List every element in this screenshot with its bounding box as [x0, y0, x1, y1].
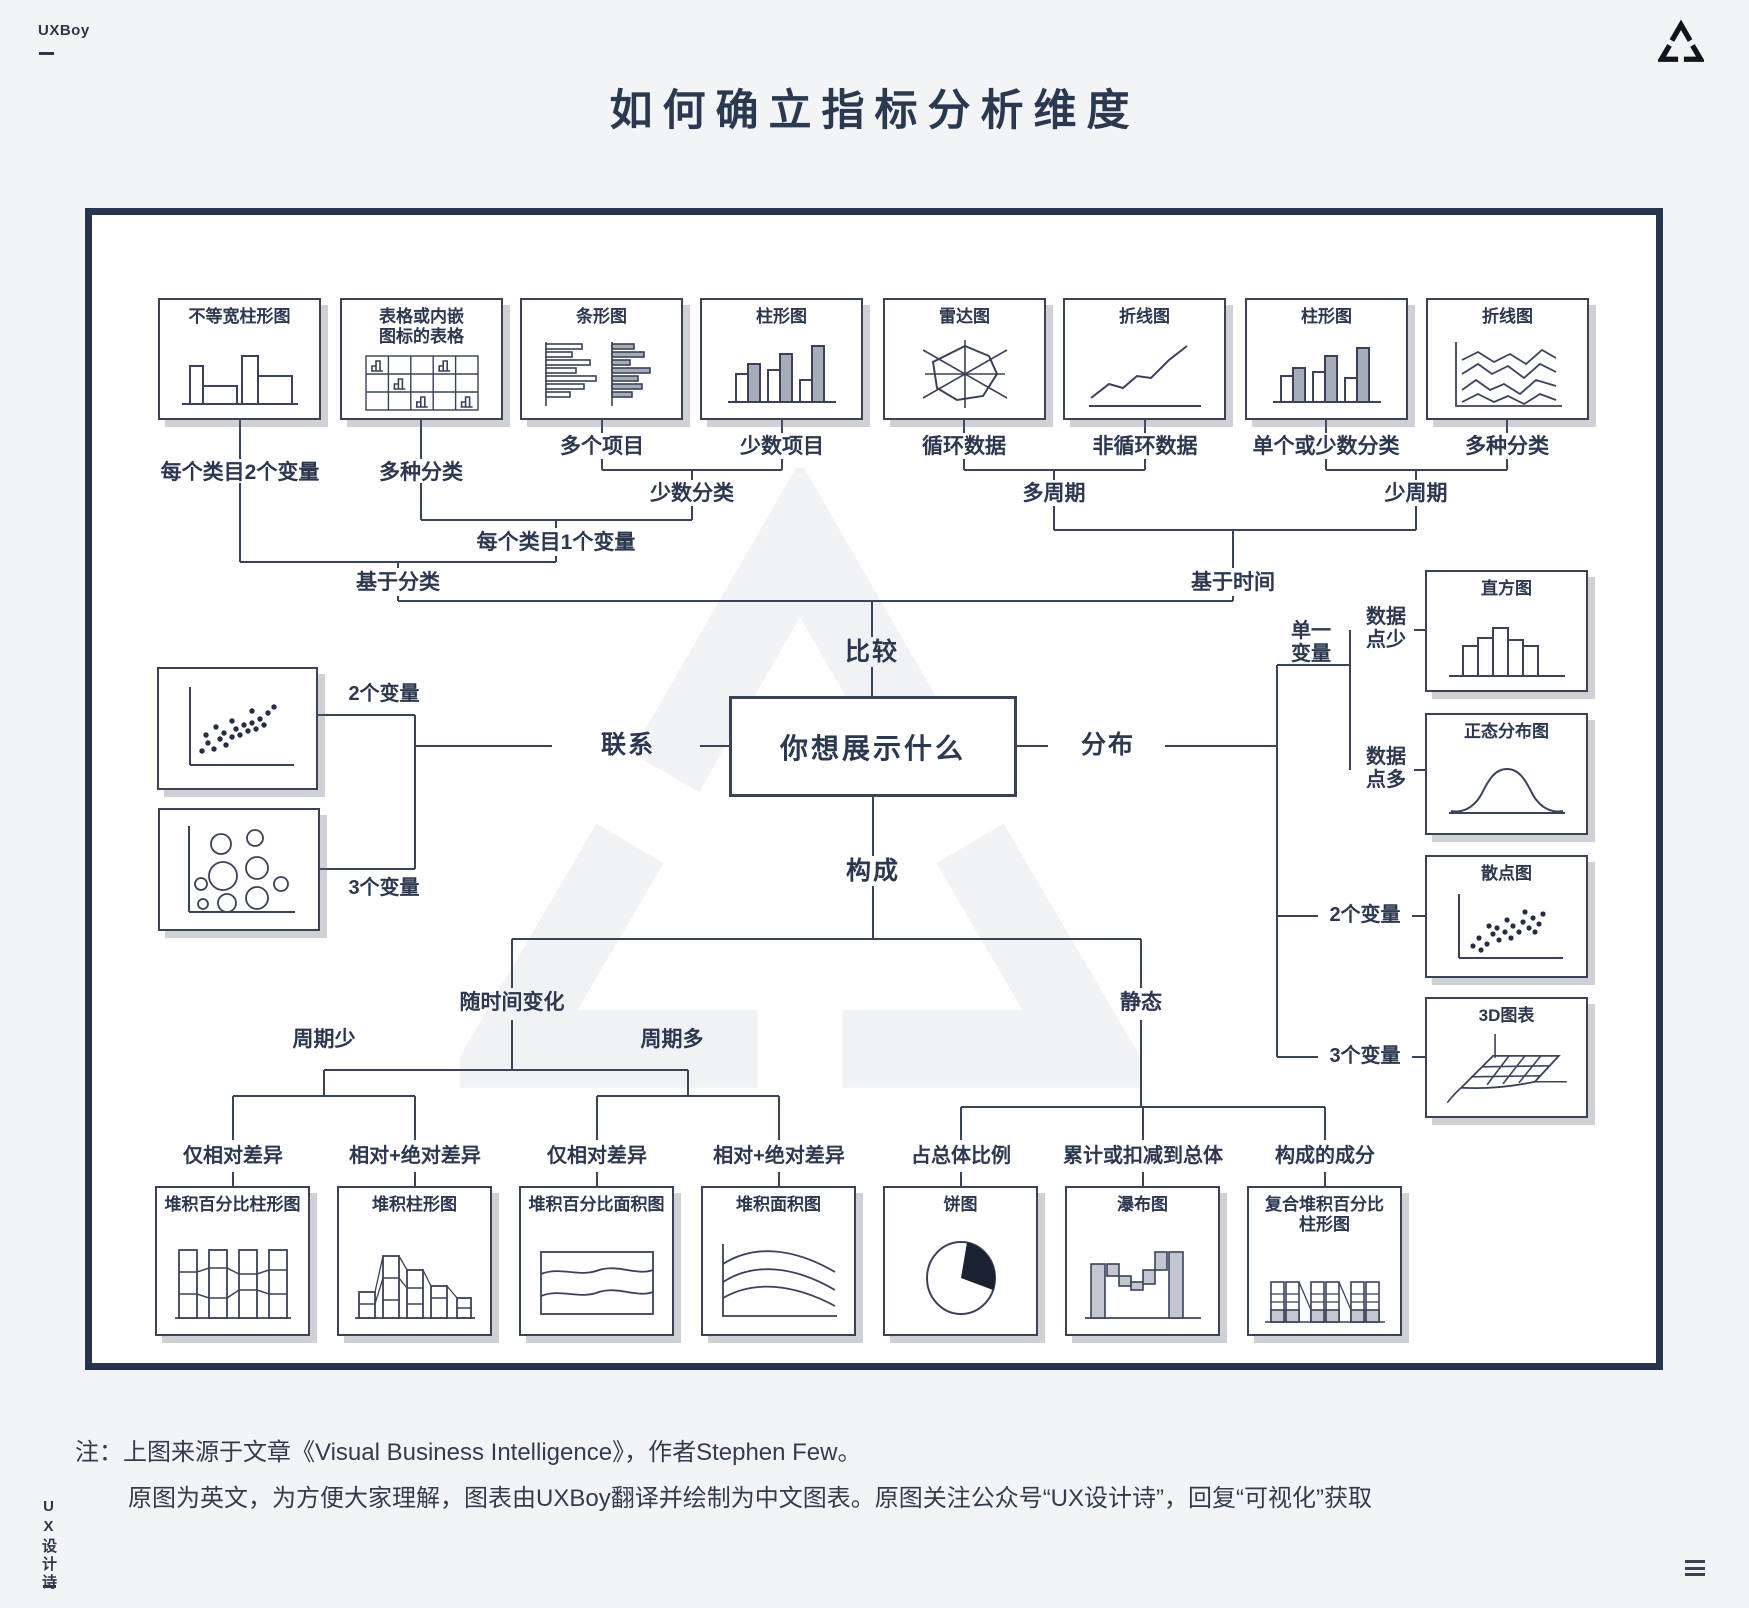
chart-box-title: 折线图: [1478, 307, 1537, 327]
bar-chart-thumb: [532, 334, 672, 414]
leaf-label: 相对+绝对差异: [713, 1145, 845, 1167]
chart-box-pie: 饼图: [883, 1186, 1038, 1336]
chart-box-title: 柱形图: [1297, 307, 1356, 327]
waterfall-chart-thumb: [1073, 1230, 1213, 1330]
chart-box-title: 堆积柱形图: [368, 1195, 461, 1215]
branch-label: 非循环数据: [1093, 435, 1198, 458]
chart-box-scatter-2var: [157, 667, 318, 790]
column-chart-thumb: [712, 334, 852, 414]
chart-box-title: 堆积百分比柱形图: [161, 1195, 305, 1215]
chart-box-stacked-100-area: 堆积百分比面积图: [519, 1186, 674, 1336]
chart-box-3d: 3D图表: [1425, 997, 1588, 1118]
connectors-compare-left: [240, 420, 782, 601]
distribution-single-variable-label: 单一变量: [1287, 620, 1335, 666]
chart-box-waterfall: 瀑布图: [1065, 1186, 1220, 1336]
note-line-1: 注：上图来源于文章《Visual Business Intelligence》，…: [75, 1432, 862, 1467]
leaf-label: 占总体比例: [911, 1145, 1011, 1167]
page: UXBoy 如何确立指标分析维度 不等宽柱形图: [0, 0, 1749, 1608]
column-chart-thumb: [1257, 334, 1397, 414]
stacked-area-thumb: [709, 1230, 849, 1330]
chart-box-scatter: 散点图: [1425, 855, 1588, 978]
vertical-brand-dash: [43, 1585, 56, 1588]
distribution-few-points-label: 数据点少: [1362, 606, 1410, 652]
merge-label-by-category: 基于分类: [356, 571, 440, 594]
multi-line-chart-thumb: [1438, 334, 1578, 414]
leaf-label: 累计或扣减到总体: [1063, 1145, 1223, 1167]
scatter-chart-thumb: [1437, 886, 1577, 972]
connectors-distribution: [1017, 630, 1425, 1057]
chart-box-stacked-column: 堆积柱形图: [337, 1186, 492, 1336]
chart-box-title: 3D图表: [1475, 1006, 1539, 1026]
chart-box-title: 瀑布图: [1113, 1195, 1172, 1215]
chart-box-title: 雷达图: [935, 307, 994, 327]
chart-box-title: 条形图: [572, 307, 631, 327]
three-d-chart-thumb: [1437, 1026, 1577, 1112]
chart-box-title: 柱形图: [752, 307, 811, 327]
chart-box-title: 饼图: [940, 1195, 982, 1215]
stacked-100-area-thumb: [527, 1230, 667, 1330]
composition-static-label: 静态: [1120, 991, 1162, 1014]
chart-box-title: 直方图: [1477, 579, 1536, 599]
menu-icon[interactable]: [1685, 1560, 1705, 1577]
composition-many-periods-label: 周期多: [641, 1028, 704, 1051]
merge-label-few-periods: 少周期: [1385, 482, 1448, 505]
normal-distribution-thumb: [1437, 749, 1577, 829]
chart-box-bar: 条形图: [520, 298, 683, 420]
merge-label-by-time: 基于时间: [1191, 571, 1275, 594]
chart-box-title: 复合堆积百分比柱形图: [1249, 1195, 1400, 1236]
chart-box-multi-line: 折线图: [1426, 298, 1589, 420]
chart-box-title: 不等宽柱形图: [185, 307, 295, 327]
histogram-thumb: [1437, 606, 1577, 686]
branch-label: 单个或少数分类: [1253, 435, 1400, 458]
line-chart-thumb: [1075, 334, 1215, 414]
distribution-many-points-label: 数据点多: [1362, 746, 1410, 792]
chart-box-histogram: 直方图: [1425, 570, 1588, 692]
chart-box-line: 折线图: [1063, 298, 1226, 420]
stacked-column-thumb: [345, 1230, 485, 1330]
chart-box-compound-stacked-100-column: 复合堆积百分比柱形图: [1247, 1186, 1402, 1336]
relation-three-variables-label: 3个变量: [348, 877, 419, 899]
connectors-relation: [318, 715, 729, 869]
chart-box-column-2: 柱形图: [1245, 298, 1408, 420]
chart-box-column: 柱形图: [700, 298, 863, 420]
branch-relation: 联系: [601, 732, 655, 760]
leaf-label: 相对+绝对差异: [349, 1145, 481, 1167]
leaf-label: 构成的成分: [1275, 1145, 1375, 1167]
merge-label-one-variable: 每个类目1个变量: [477, 531, 636, 554]
branch-compare: 比较: [845, 639, 899, 667]
variable-width-column-chart-thumb: [170, 334, 310, 414]
compound-stacked-100-column-thumb: [1255, 1238, 1395, 1330]
chart-box-bubble-3var: [158, 808, 320, 931]
merge-label-few-categories: 少数分类: [650, 482, 734, 505]
branch-distribution: 分布: [1081, 732, 1135, 760]
branch-label: 循环数据: [922, 435, 1006, 458]
composition-over-time-label: 随时间变化: [460, 991, 565, 1014]
chart-box-title: 堆积百分比面积图: [525, 1195, 669, 1215]
question-box: 你想展示什么: [729, 696, 1017, 797]
table-chart-thumb: [352, 352, 492, 414]
note-line-2: 原图为英文，为方便大家理解，图表由UXBoy翻译并绘制为中文图表。原图关注公众号…: [128, 1478, 1372, 1513]
vertical-brand-text: UX设计诗: [38, 1498, 59, 1592]
chart-box-stacked-100-column: 堆积百分比柱形图: [155, 1186, 310, 1336]
leaf-label: 仅相对差异: [183, 1145, 283, 1167]
distribution-two-variables-label: 2个变量: [1329, 904, 1400, 926]
branch-label: 多个项目: [560, 435, 644, 458]
chart-box-radar: 雷达图: [883, 298, 1046, 420]
chart-box-table: 表格或内嵌图标的表格: [340, 298, 503, 420]
distribution-three-variables-label: 3个变量: [1329, 1045, 1400, 1067]
chart-box-title: 堆积面积图: [732, 1195, 825, 1215]
branch-label: 少数项目: [740, 435, 824, 458]
branch-label: 多种分类: [379, 461, 463, 484]
stacked-100-column-thumb: [163, 1230, 303, 1330]
composition-few-periods-label: 周期少: [293, 1028, 356, 1051]
pie-chart-thumb: [891, 1226, 1031, 1330]
chart-box-title: 折线图: [1115, 307, 1174, 327]
branch-label: 多种分类: [1465, 435, 1549, 458]
scatter-chart-thumb: [168, 677, 308, 781]
radar-chart-thumb: [895, 334, 1035, 414]
relation-two-variables-label: 2个变量: [348, 683, 419, 705]
chart-box-variable-width-column: 不等宽柱形图: [158, 298, 321, 420]
branch-label: 每个类目2个变量: [161, 461, 320, 484]
merge-label-many-periods: 多周期: [1023, 482, 1086, 505]
chart-box-title: 正态分布图: [1460, 722, 1553, 742]
chart-box-title: 表格或内嵌图标的表格: [342, 307, 501, 348]
leaf-label: 仅相对差异: [547, 1145, 647, 1167]
chart-box-title: 散点图: [1477, 864, 1536, 884]
branch-composition: 构成: [846, 858, 900, 886]
chart-box-stacked-area: 堆积面积图: [701, 1186, 856, 1336]
bubble-chart-thumb: [169, 818, 309, 922]
chart-box-normal-distribution: 正态分布图: [1425, 713, 1588, 835]
